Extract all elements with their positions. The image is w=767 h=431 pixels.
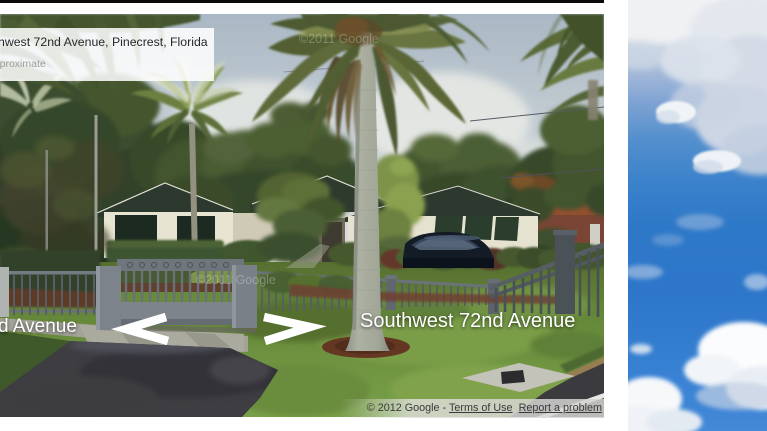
svg-text:©2011 Google: ©2011 Google	[299, 32, 379, 46]
svg-text:©2011 Google: ©2011 Google	[196, 273, 276, 287]
